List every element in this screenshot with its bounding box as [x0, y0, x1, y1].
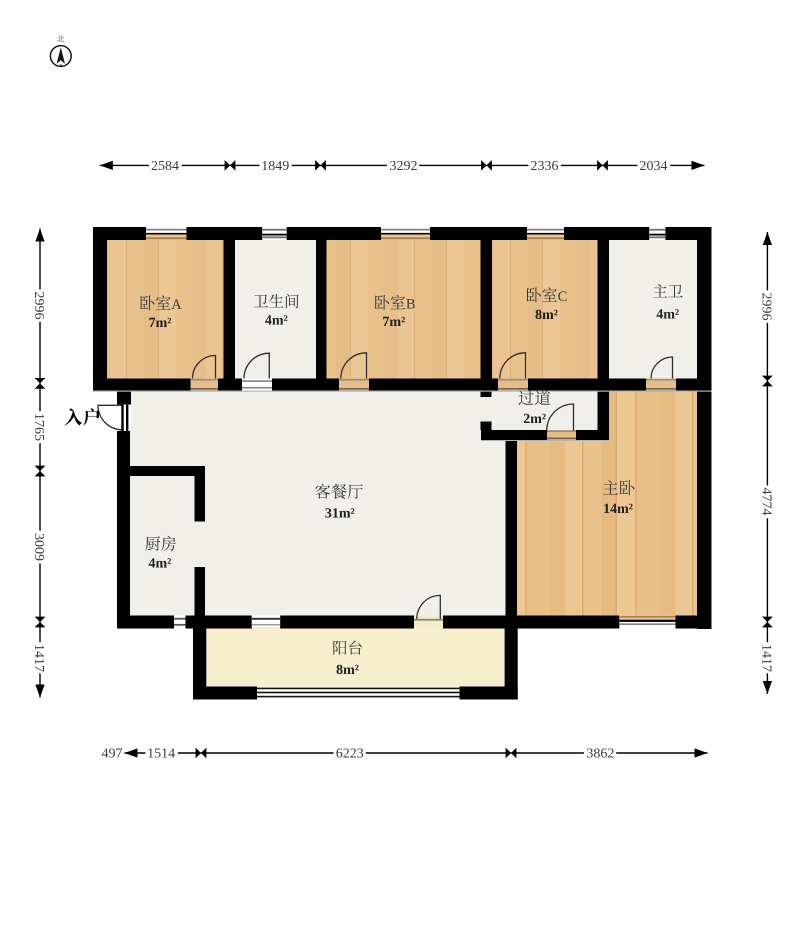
svg-text:1849: 1849	[261, 159, 289, 174]
svg-text:2584: 2584	[151, 159, 179, 174]
svg-text:3292: 3292	[390, 159, 418, 174]
svg-text:3862: 3862	[586, 747, 614, 762]
svg-text:2034: 2034	[640, 159, 668, 174]
svg-text:2336: 2336	[531, 159, 559, 174]
svg-text:2996: 2996	[31, 292, 46, 320]
svg-text:497: 497	[102, 747, 123, 762]
svg-text:2996: 2996	[759, 293, 774, 321]
svg-text:6223: 6223	[336, 747, 364, 762]
svg-text:1514: 1514	[147, 747, 175, 762]
svg-text:1417: 1417	[759, 644, 774, 672]
svg-text:4774: 4774	[759, 488, 774, 516]
svg-text:1417: 1417	[31, 644, 46, 672]
svg-text:1765: 1765	[31, 413, 46, 441]
svg-text:3009: 3009	[31, 533, 46, 561]
